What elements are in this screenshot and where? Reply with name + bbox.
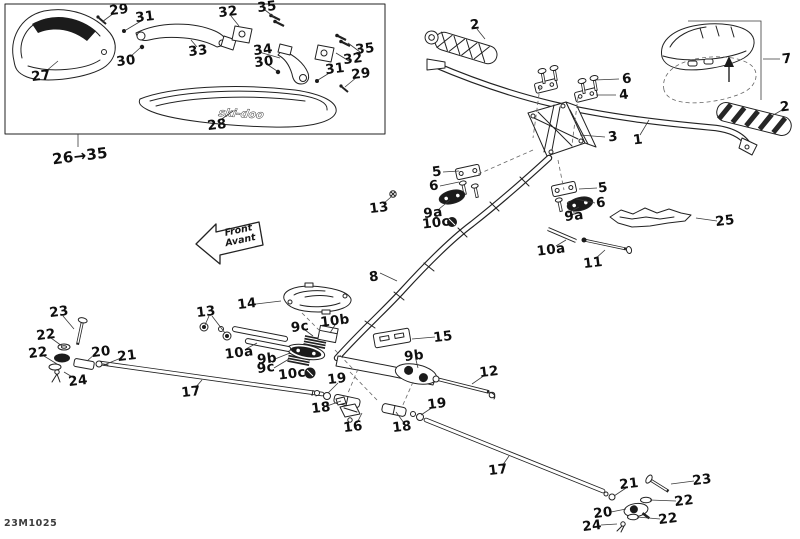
bushing-9a-left bbox=[438, 188, 466, 207]
part-label: 4 bbox=[618, 86, 630, 103]
part-label: 24 bbox=[67, 372, 88, 390]
part-label: 30 bbox=[115, 52, 136, 70]
part-label: 13 bbox=[368, 199, 389, 217]
part-label: 19 bbox=[326, 370, 347, 388]
handlebar-pad bbox=[662, 21, 761, 103]
parts-diagram: ski-doo bbox=[0, 0, 800, 539]
part-label: 21 bbox=[618, 475, 639, 493]
part-label: 15 bbox=[432, 328, 453, 346]
coupler-18-right bbox=[381, 403, 406, 417]
part-label: 32 bbox=[217, 3, 238, 21]
part-label: 11 bbox=[582, 254, 603, 272]
part-label: 6 bbox=[595, 194, 607, 211]
part-label: 2 bbox=[469, 16, 481, 33]
slotted-bracket-15 bbox=[373, 328, 411, 348]
part-label: 29 bbox=[108, 1, 129, 19]
part-label: 9a bbox=[564, 207, 585, 225]
nut-19-right bbox=[417, 414, 424, 421]
part-label: 2 bbox=[779, 98, 791, 115]
part-label: 22 bbox=[27, 344, 48, 362]
part-label: 33 bbox=[187, 42, 208, 60]
part-label: 12 bbox=[478, 363, 499, 381]
part-label: 9b bbox=[403, 347, 424, 365]
part-label: 10c bbox=[421, 213, 450, 232]
part-label: 23 bbox=[691, 471, 712, 489]
part-label: 27 bbox=[30, 67, 51, 85]
part-label: 24 bbox=[581, 517, 602, 535]
handlebar bbox=[433, 64, 747, 143]
part-label: 16 bbox=[342, 418, 363, 436]
support-plate-14 bbox=[284, 283, 351, 314]
part-label: 9c bbox=[256, 359, 276, 377]
part-label: 8 bbox=[368, 268, 380, 285]
part-label: 29 bbox=[350, 65, 371, 83]
part-label: 31 bbox=[324, 60, 345, 78]
steering-column-group bbox=[337, 158, 691, 358]
serrated-bracket-25 bbox=[610, 208, 691, 227]
part-label: 31 bbox=[134, 8, 155, 26]
nut-21-right bbox=[609, 494, 615, 500]
front-arrow: Front Avant bbox=[196, 222, 263, 264]
part-label: 20 bbox=[90, 343, 111, 361]
part-label: 14 bbox=[236, 295, 257, 313]
part-label: 13 bbox=[195, 303, 216, 321]
part-label: 22 bbox=[657, 510, 678, 528]
part-label: 28 bbox=[206, 116, 227, 134]
part-label: 3 bbox=[607, 128, 619, 145]
part-label: 22 bbox=[673, 492, 694, 510]
part-label: 21 bbox=[116, 347, 137, 365]
part-label: 19 bbox=[426, 395, 447, 413]
part-label: 23 bbox=[48, 303, 69, 321]
part-label: 18 bbox=[391, 418, 412, 436]
part-label: 17 bbox=[487, 461, 508, 479]
drawing-code: 23M1025 bbox=[4, 518, 57, 529]
part-label: 6 bbox=[428, 177, 440, 194]
part-label: 30 bbox=[253, 53, 274, 71]
part-label: 1 bbox=[632, 131, 644, 148]
part-label: 9c bbox=[290, 318, 310, 336]
part-label: 17 bbox=[180, 383, 201, 401]
part-label: 18 bbox=[310, 399, 331, 417]
part-label: 10c bbox=[277, 364, 306, 383]
diagram-canvas: ski-doo bbox=[0, 0, 800, 539]
part-label: 22 bbox=[35, 326, 56, 344]
part-label: 6 bbox=[621, 70, 633, 87]
part-label: 25 bbox=[714, 212, 735, 230]
part-label: 35 bbox=[256, 0, 277, 16]
part-label: 7 bbox=[781, 50, 793, 67]
